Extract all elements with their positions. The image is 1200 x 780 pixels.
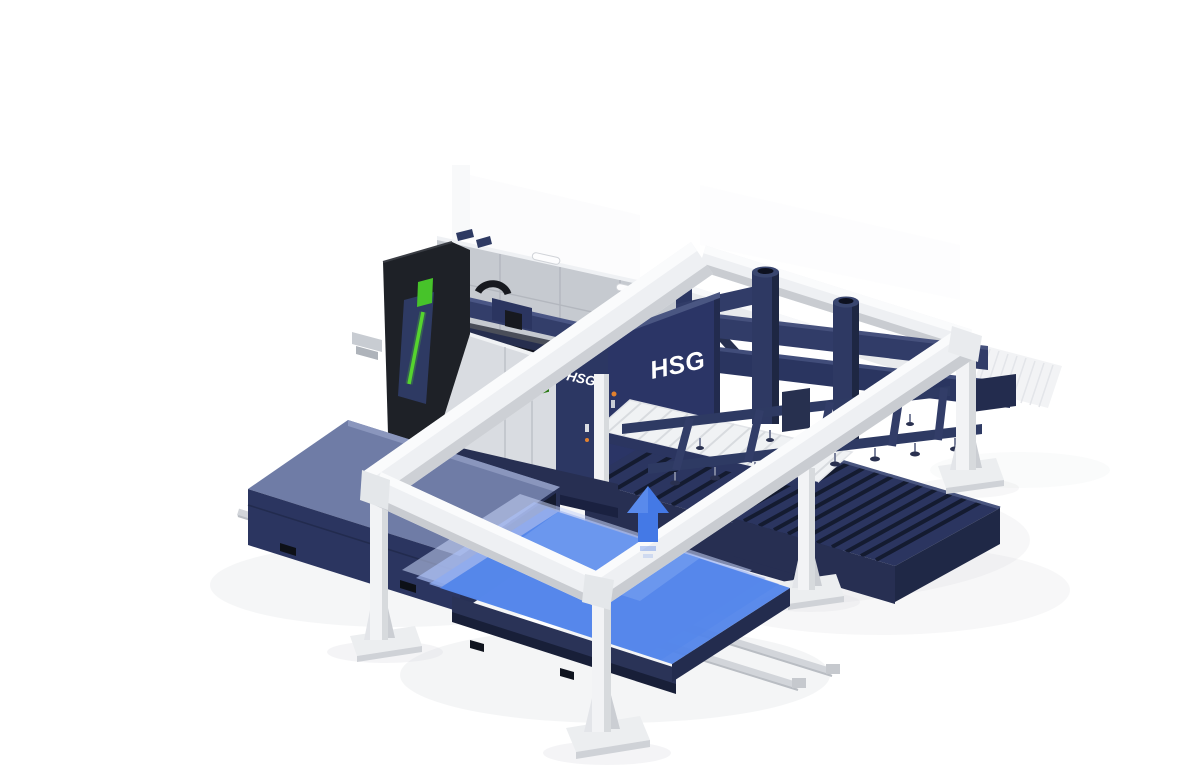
suction-center-link — [782, 388, 810, 432]
leg-post — [798, 468, 809, 590]
leg-post-shade — [809, 468, 815, 590]
suction-cup — [870, 448, 880, 462]
gantry-leg-mid-north — [594, 374, 604, 488]
crane-column-1 — [752, 267, 779, 425]
arrow-fade-1 — [640, 546, 656, 551]
indicator-light — [585, 438, 589, 442]
green-panel — [417, 278, 433, 307]
product-render-canvas: HSG — [0, 0, 1200, 780]
arrow-fade-2 — [643, 554, 653, 558]
bridge-end-block — [972, 374, 1016, 412]
leg-post-shade — [382, 492, 388, 640]
isometric-scene: HSG — [0, 0, 1200, 780]
leg-post — [592, 596, 604, 732]
column-bore — [758, 268, 774, 274]
rail-end-stop — [792, 678, 806, 688]
column-side — [772, 272, 779, 424]
leg-post — [370, 492, 382, 640]
leg-post-shade — [604, 596, 611, 732]
suction-cup — [910, 443, 920, 457]
ghost-edge — [452, 165, 470, 240]
column-bore — [839, 298, 854, 304]
suction-cup — [906, 414, 914, 426]
leg-post-shade — [969, 352, 976, 470]
leg-post — [956, 352, 969, 470]
indicator-light — [612, 392, 617, 397]
sensor-tag — [611, 400, 615, 408]
leg-post-shade — [604, 374, 609, 488]
rail-end-stop — [826, 664, 840, 674]
sensor-tag — [585, 424, 589, 432]
